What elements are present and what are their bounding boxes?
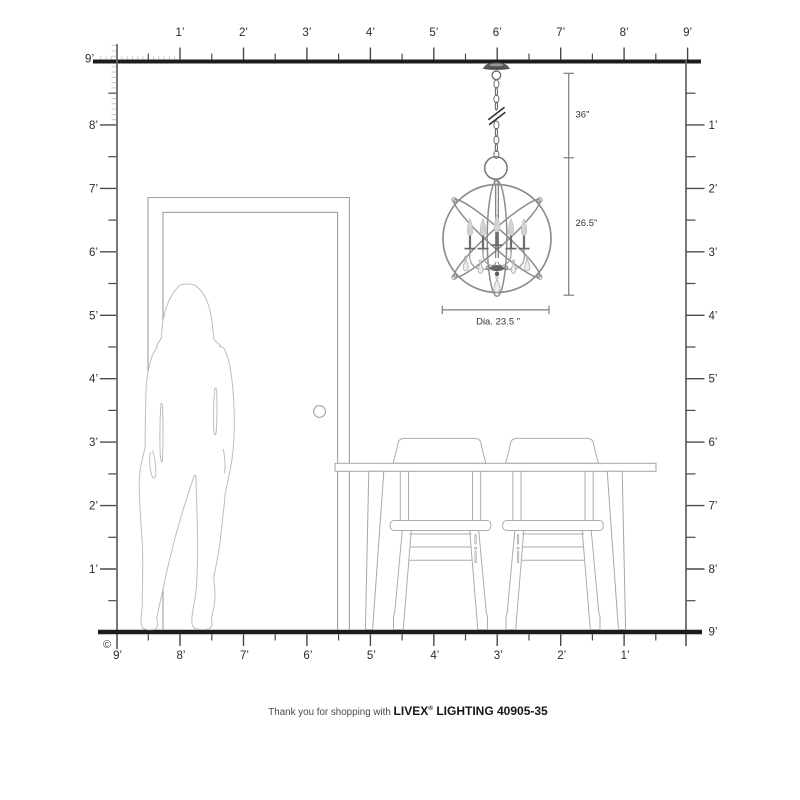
svg-text:3’: 3’ (89, 437, 98, 449)
svg-text:3’: 3’ (709, 247, 718, 259)
svg-text:36”: 36” (576, 110, 590, 121)
svg-text:5’: 5’ (89, 310, 98, 322)
svg-text:4’: 4’ (89, 374, 98, 386)
svg-text:6’: 6’ (89, 247, 98, 259)
svg-text:8’: 8’ (177, 650, 186, 662)
svg-text:1’: 1’ (89, 564, 98, 576)
svg-text:4’: 4’ (709, 310, 718, 322)
svg-text:1’: 1’ (709, 120, 718, 132)
svg-text:1’: 1’ (176, 27, 185, 39)
svg-text:1’: 1’ (621, 650, 630, 662)
svg-text:8’: 8’ (709, 564, 718, 576)
svg-text:3’: 3’ (494, 650, 503, 662)
svg-text:2’: 2’ (557, 650, 566, 662)
svg-text:3’: 3’ (302, 27, 311, 39)
svg-text:6’: 6’ (493, 27, 502, 39)
svg-text:7’: 7’ (240, 650, 249, 662)
svg-text:6’: 6’ (709, 437, 718, 449)
svg-text:2’: 2’ (239, 27, 248, 39)
svg-text:9’: 9’ (683, 27, 692, 39)
svg-text:7’: 7’ (556, 27, 565, 39)
svg-text:4’: 4’ (366, 27, 375, 39)
svg-text:7’: 7’ (709, 501, 718, 513)
svg-text:9’: 9’ (85, 54, 94, 66)
svg-text:4’: 4’ (430, 650, 439, 662)
svg-text:5’: 5’ (367, 650, 376, 662)
svg-text:6’: 6’ (303, 650, 312, 662)
svg-text:2’: 2’ (89, 501, 98, 513)
svg-text:7’: 7’ (89, 183, 98, 195)
svg-text:8’: 8’ (620, 27, 629, 39)
svg-text:8’: 8’ (89, 120, 98, 132)
svg-text:9’: 9’ (113, 650, 122, 662)
svg-text:9’: 9’ (709, 627, 718, 639)
svg-text:2’: 2’ (709, 183, 718, 195)
svg-text:5’: 5’ (709, 374, 718, 386)
svg-text:©: © (103, 639, 111, 651)
svg-text:26.5”: 26.5” (576, 218, 598, 229)
svg-text:Dia. 23.5 ”: Dia. 23.5 ” (476, 317, 520, 328)
svg-text:5’: 5’ (429, 27, 438, 39)
